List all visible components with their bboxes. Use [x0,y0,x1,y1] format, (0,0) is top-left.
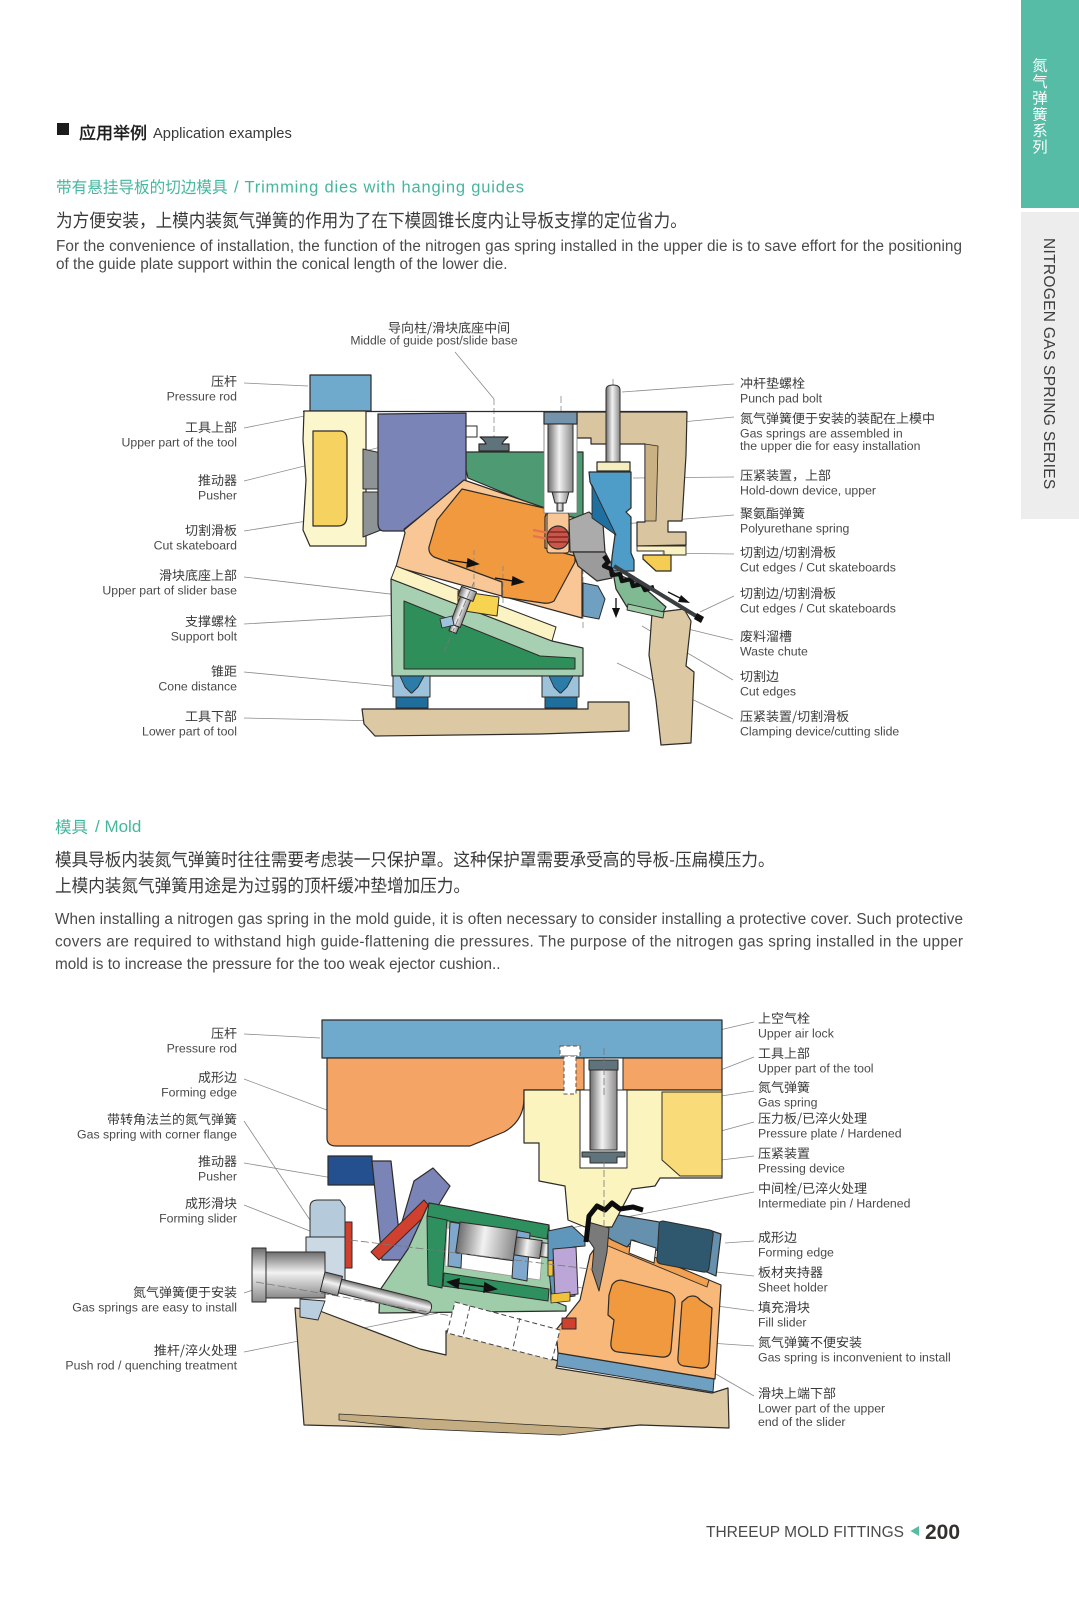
svg-text:Lower part of the upper: Lower part of the upper [758,1402,885,1416]
svg-text:Pressure rod: Pressure rod [167,1042,238,1056]
svg-text:When installing a nitrogen gas: When installing a nitrogen gas spring in… [55,911,963,928]
svg-text:the upper die for easy install: the upper die for easy installation [740,439,921,453]
svg-text:Push rod / quenching treatment: Push rod / quenching treatment [65,1359,237,1373]
svg-text:Middle of guide post/slide bas: Middle of guide post/slide base [350,334,518,348]
svg-text:covers are required to withsta: covers are required to withstand high gu… [55,934,963,951]
svg-text:200: 200 [925,1521,960,1544]
svg-text:Pusher: Pusher [198,1170,237,1184]
svg-text:/ Mold: / Mold [95,817,141,836]
svg-text:Upper part of the tool: Upper part of the tool [758,1062,874,1076]
svg-text:Waste chute: Waste chute [740,645,808,659]
svg-text:Application examples: Application examples [153,126,292,142]
svg-text:Cone distance: Cone distance [158,680,237,694]
svg-text:mold is to increase the pressu: mold is to increase the pressure for the… [55,956,501,973]
svg-text:Forming slider: Forming slider [159,1212,237,1226]
svg-text:Pressure rod: Pressure rod [167,390,238,404]
svg-text:Upper part of the tool: Upper part of the tool [121,436,237,450]
svg-text:Pressure plate / Hardened: Pressure plate / Hardened [758,1127,902,1141]
svg-text:Forming edge: Forming edge [758,1246,834,1260]
svg-text:Cut edges: Cut edges [740,685,796,699]
svg-text:NITROGEN GAS SPRING SERIES: NITROGEN GAS SPRING SERIES [1040,238,1057,490]
svg-text:Clamping device/cutting slide: Clamping device/cutting slide [740,725,899,739]
svg-text:Gas spring is inconvenient to: Gas spring is inconvenient to install [758,1351,951,1365]
svg-text:/ Trimming dies with hanging g: / Trimming dies with hanging guides [234,179,524,197]
svg-text:Hold-down device, upper: Hold-down device, upper [740,484,876,498]
svg-text:Intermediate pin / Hardened: Intermediate pin / Hardened [758,1197,911,1211]
svg-text:Polyurethane spring: Polyurethane spring [740,522,850,536]
svg-text:Pusher: Pusher [198,489,237,503]
svg-text:Fill slider: Fill slider [758,1316,807,1330]
svg-text:Support bolt: Support bolt [171,630,238,644]
svg-text:Cut edges / Cut skateboards: Cut edges / Cut skateboards [740,561,896,575]
svg-text:end of the slider: end of the slider [758,1415,846,1429]
svg-text:Upper part of slider base: Upper part of slider base [102,584,237,598]
svg-text:Upper air lock: Upper air lock [758,1027,835,1041]
svg-text:Gas spring: Gas spring [758,1096,818,1110]
svg-text:Pressing device: Pressing device [758,1162,845,1176]
svg-text:Cut skateboard: Cut skateboard [154,539,238,553]
svg-text:Lower part of tool: Lower part of tool [142,725,237,739]
svg-text:Sheet holder: Sheet holder [758,1281,828,1295]
svg-text:Forming edge: Forming edge [161,1086,237,1100]
svg-text:Gas spring with corner flange: Gas spring with corner flange [77,1128,237,1142]
svg-text:of the guide plate support wit: of the guide plate support within the co… [56,256,508,273]
svg-text:Gas springs are easy to instal: Gas springs are easy to install [72,1301,237,1315]
svg-text:Punch pad bolt: Punch pad bolt [740,392,823,406]
svg-text:Cut edges / Cut skateboards: Cut edges / Cut skateboards [740,602,896,616]
svg-text:For the convenience of install: For the convenience of installation, the… [56,238,962,255]
svg-text:THREEUP MOLD FITTINGS: THREEUP MOLD FITTINGS [706,1524,904,1541]
